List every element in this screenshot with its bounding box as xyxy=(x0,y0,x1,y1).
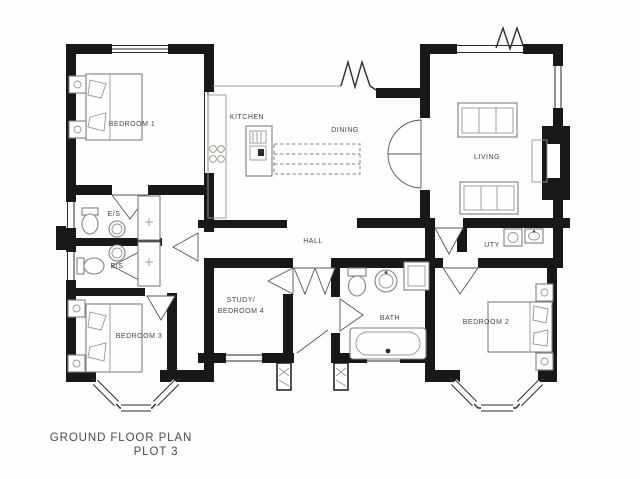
doors xyxy=(112,120,478,353)
room-label-uty: UTY xyxy=(484,242,500,249)
room-label-es-lower: E/S xyxy=(111,263,124,270)
basin-symbol xyxy=(109,221,125,237)
nightstand xyxy=(69,76,86,93)
room-label-bedroom-1: BEDROOM 1 xyxy=(109,121,156,128)
bath-fixtures xyxy=(348,262,429,359)
room-label-bedroom-2: BEDROOM 2 xyxy=(463,319,510,326)
toilet-symbol xyxy=(82,214,98,234)
double-door-living-right-leaf xyxy=(388,154,421,188)
bed-bedroom2 xyxy=(488,284,553,370)
title-line-2: PLOT 3 xyxy=(134,446,179,458)
zigzag-break-dining xyxy=(341,62,376,90)
room-label-bath: BATH xyxy=(380,315,400,322)
room-label-bedroom-4: BEDROOM 4 xyxy=(218,308,265,315)
nightstand xyxy=(68,300,85,317)
room-label-kitchen: KITCHEN xyxy=(230,114,264,121)
washing-machine-symbol xyxy=(504,229,522,246)
door-bedroom2 xyxy=(443,268,478,294)
plan-title: GROUND FLOOR PLAN PLOT 3 xyxy=(50,432,192,458)
toilet-symbol xyxy=(349,276,366,296)
room-label-bedroom-3: BEDROOM 3 xyxy=(116,333,163,340)
rear-pillars xyxy=(277,363,348,390)
door-hall-corridor xyxy=(173,233,198,261)
bed-bedroom1 xyxy=(69,74,142,140)
sofa-upper xyxy=(458,103,517,137)
scanned-floor-plan: BEDROOM 1KITCHENDININGLIVINGE/SE/SHALLUT… xyxy=(0,0,640,479)
nightstand xyxy=(69,121,86,138)
door-study xyxy=(268,268,293,294)
roof-break-lines xyxy=(213,28,524,90)
floor-plan-svg: BEDROOM 1KITCHENDININGLIVINGE/SE/SHALLUT… xyxy=(0,0,640,479)
basin-symbol xyxy=(109,245,125,261)
sofa-lower xyxy=(460,182,518,214)
bathtub-symbol xyxy=(350,328,426,359)
nightstand xyxy=(68,355,85,372)
room-label-hall: HALL xyxy=(303,238,323,245)
door-rear-exit xyxy=(297,330,328,353)
title-line-1: GROUND FLOOR PLAN xyxy=(50,432,192,444)
nightstand xyxy=(536,284,553,301)
toilet-symbol xyxy=(84,258,104,274)
door-bath xyxy=(340,299,363,331)
double-door-living-left-leaf xyxy=(388,120,421,154)
kitchen-island xyxy=(246,126,272,176)
uty-appliances xyxy=(504,229,543,246)
room-label-es-upper: E/S xyxy=(108,211,121,218)
dining-table xyxy=(274,144,360,174)
room-label-study: STUDY/ xyxy=(227,297,256,304)
door-hall-lobby-left xyxy=(294,268,315,294)
toilet-cistern xyxy=(77,258,84,274)
toilet-cistern xyxy=(348,268,366,276)
nightstand xyxy=(536,353,553,370)
room-label-living: LIVING xyxy=(474,154,500,161)
room-label-dining: DINING xyxy=(331,127,359,134)
